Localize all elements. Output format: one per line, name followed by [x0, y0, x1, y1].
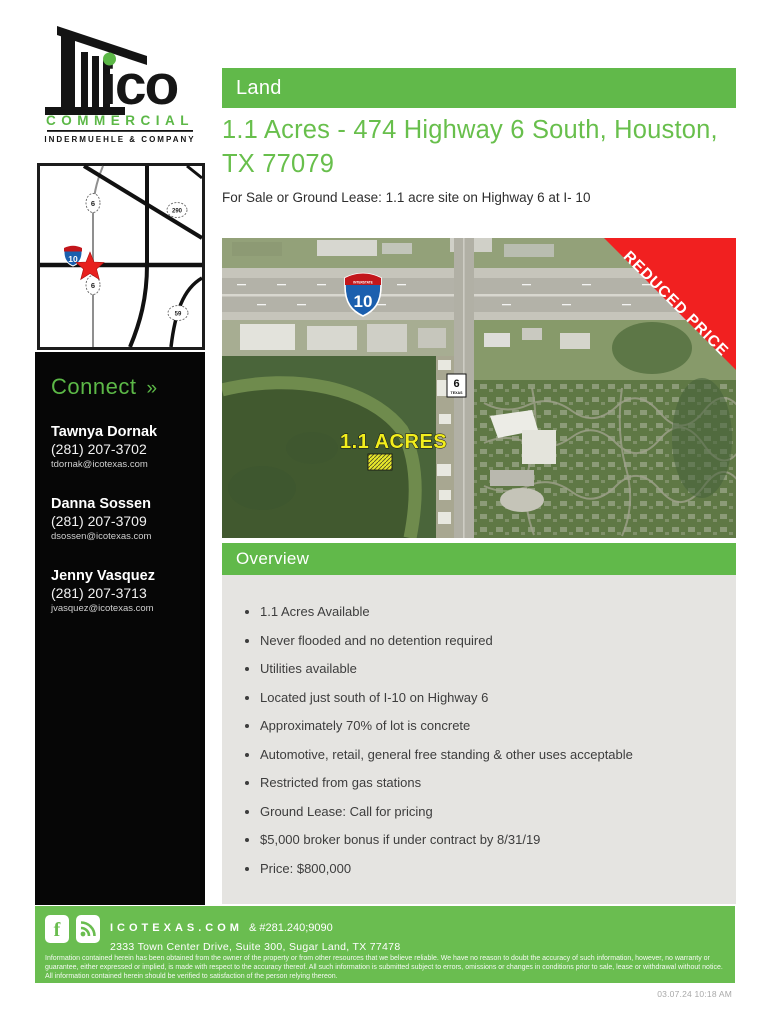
connect-sidebar: Connect» Tawnya Dornak (281) 207-3702 td…	[35, 352, 205, 905]
page-title: 1.1 Acres - 474 Highway 6 South, Houston…	[222, 113, 736, 181]
overview-bullet: Never flooded and no detention required	[260, 634, 736, 647]
svg-text:10: 10	[354, 292, 373, 311]
connect-label: Connect	[51, 374, 136, 399]
contact-card: Tawnya Dornak (281) 207-3702 tdornak@ico…	[51, 424, 193, 472]
footer-disclaimer: Information contained herein has been ob…	[45, 954, 725, 981]
overview-bullet: Ground Lease: Call for pricing	[260, 805, 736, 818]
overview-bullet: Automotive, retail, general free standin…	[260, 748, 736, 761]
overview-body: 1.1 Acres Available Never flooded and no…	[222, 575, 736, 904]
page-subtitle: For Sale or Ground Lease: 1.1 acre site …	[222, 190, 736, 205]
svg-text:TEXAS: TEXAS	[451, 391, 464, 395]
contact-email-link[interactable]: jvasquez@icotexas.com	[51, 602, 193, 616]
contact-phone: (281) 207-3709	[51, 513, 193, 530]
overview-bullet: Restricted from gas stations	[260, 776, 736, 789]
contact-email-link[interactable]: dsossen@icotexas.com	[51, 530, 193, 544]
footer: f ICOTEXAS.COM& #281.240;9090 2333 Town …	[35, 906, 735, 983]
svg-text:59: 59	[175, 312, 182, 318]
svg-text:290: 290	[172, 209, 183, 215]
overview-header: Overview	[222, 543, 736, 575]
connect-arrow-icon: »	[146, 378, 157, 399]
aerial-map: INTERSTATE 10 6 TEXAS 1.1 ACRES	[222, 238, 736, 538]
contact-name: Jenny Vasquez	[51, 568, 193, 585]
contact-phone: (281) 207-3713	[51, 585, 193, 602]
logo-divider	[47, 130, 193, 132]
logo-graphic: ico COMMERCIAL INDERMUEHLE & COMPANY	[35, 8, 205, 153]
aerial-route6-sign: 6 TEXAS	[447, 374, 466, 397]
acres-callout: 1.1 ACRES	[340, 431, 447, 453]
svg-text:6: 6	[91, 199, 95, 208]
svg-text:INTERSTATE: INTERSTATE	[353, 281, 373, 285]
website-link[interactable]: ICOTEXAS.COM	[110, 922, 243, 934]
social-icons: f	[45, 915, 107, 943]
parcel-highlight	[368, 454, 392, 470]
contact-card: Danna Sossen (281) 207-3709 dsossen@icot…	[51, 496, 193, 544]
flyer-page: ico COMMERCIAL INDERMUEHLE & COMPANY 6 2…	[0, 0, 770, 1024]
aerial-residential	[474, 378, 736, 538]
overview-bullet-list: 1.1 Acres Available Never flooded and no…	[260, 605, 736, 875]
map-border	[39, 165, 204, 349]
company-logo: ico COMMERCIAL INDERMUEHLE & COMPANY	[35, 8, 205, 153]
rss-icon[interactable]	[76, 915, 100, 943]
category-banner: Land	[222, 68, 736, 108]
contact-card: Jenny Vasquez (281) 207-3713 jvasquez@ic…	[51, 568, 193, 616]
location-map-thumbnail: 6 290 6 59 10	[37, 163, 205, 350]
overview-bullet: Located just south of I-10 on Highway 6	[260, 691, 736, 704]
facebook-icon[interactable]: f	[45, 915, 69, 943]
contact-name: Tawnya Dornak	[51, 424, 193, 441]
overview-bullet: 1.1 Acres Available	[260, 605, 736, 618]
contact-phone: (281) 207-3702	[51, 441, 193, 458]
svg-text:6: 6	[91, 281, 95, 290]
logo-green-dot	[103, 53, 116, 66]
contact-email-link[interactable]: tdornak@icotexas.com	[51, 458, 193, 472]
overview-bullet: Utilities available	[260, 662, 736, 675]
logo-tagline: INDERMUEHLE & COMPANY	[44, 135, 195, 144]
print-timestamp: 03.07.24 10:18 AM	[657, 989, 732, 999]
footer-address: 2333 Town Center Drive, Suite 300, Sugar…	[110, 941, 400, 953]
svg-text:6: 6	[453, 378, 459, 390]
contact-name: Danna Sossen	[51, 496, 193, 513]
footer-phone: & #281.240;9090	[249, 922, 333, 934]
overview-bullet: $5,000 broker bonus if under contract by…	[260, 833, 736, 846]
overview-bullet: Approximately 70% of lot is concrete	[260, 719, 736, 732]
logo-commercial: COMMERCIAL	[46, 113, 194, 128]
overview-bullet: Price: $800,000	[260, 862, 736, 875]
footer-contact-lines: ICOTEXAS.COM& #281.240;9090 2333 Town Ce…	[110, 918, 400, 953]
connect-heading: Connect»	[51, 374, 193, 400]
